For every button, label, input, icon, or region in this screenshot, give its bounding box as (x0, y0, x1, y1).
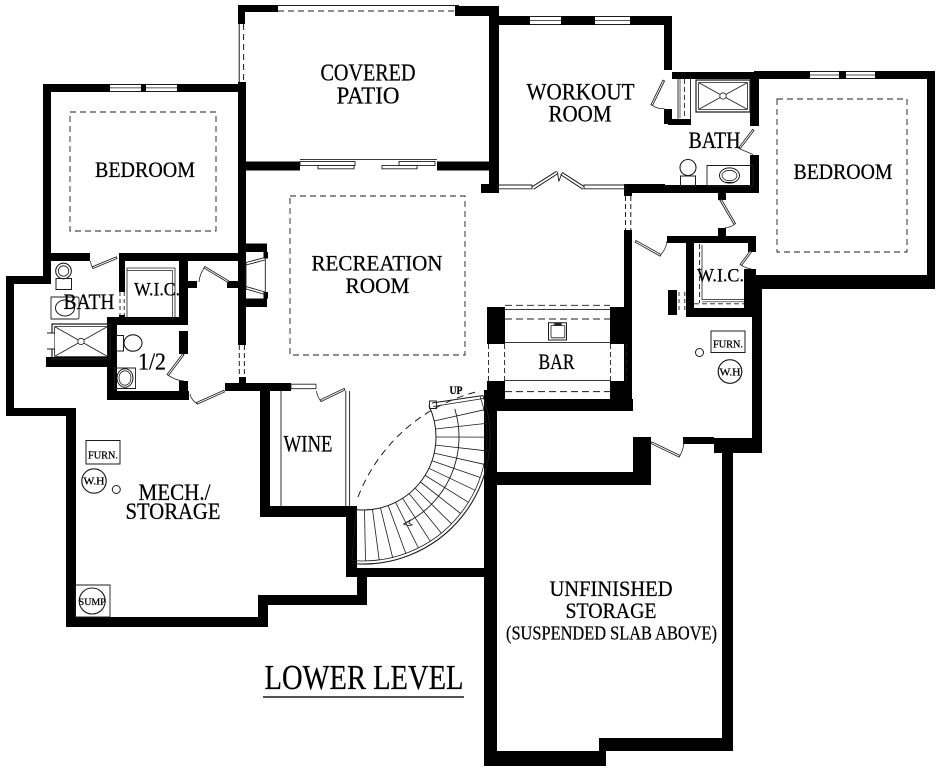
svg-text:SUMP: SUMP (79, 598, 106, 608)
svg-text:W.I.C.: W.I.C. (697, 267, 744, 287)
svg-text:BEDROOM: BEDROOM (794, 159, 893, 184)
svg-text:W.I.C.: W.I.C. (134, 281, 180, 301)
svg-text:BATH: BATH (689, 128, 741, 153)
svg-text:STORAGE: STORAGE (566, 598, 657, 623)
svg-text:PATIO: PATIO (337, 84, 400, 110)
svg-text:BAR: BAR (539, 349, 575, 374)
svg-text:RECREATION: RECREATION (312, 251, 443, 276)
svg-text:W.H: W.H (720, 368, 741, 379)
svg-text:FURN.: FURN. (88, 451, 118, 462)
svg-text:ROOM: ROOM (549, 102, 612, 127)
svg-text:BATH: BATH (64, 289, 115, 314)
svg-text:WINE: WINE (284, 432, 333, 457)
svg-text:W.H: W.H (84, 477, 105, 488)
svg-text:FURN.: FURN. (713, 340, 743, 351)
svg-text:BEDROOM: BEDROOM (95, 157, 195, 182)
svg-text:1/2: 1/2 (138, 350, 166, 376)
svg-text:ROOM: ROOM (346, 273, 410, 298)
svg-text:(SUSPENDED SLAB ABOVE): (SUSPENDED SLAB ABOVE) (506, 624, 717, 645)
svg-text:UP: UP (450, 385, 463, 397)
svg-text:STORAGE: STORAGE (126, 499, 221, 524)
svg-text:LOWER LEVEL: LOWER LEVEL (265, 659, 464, 697)
